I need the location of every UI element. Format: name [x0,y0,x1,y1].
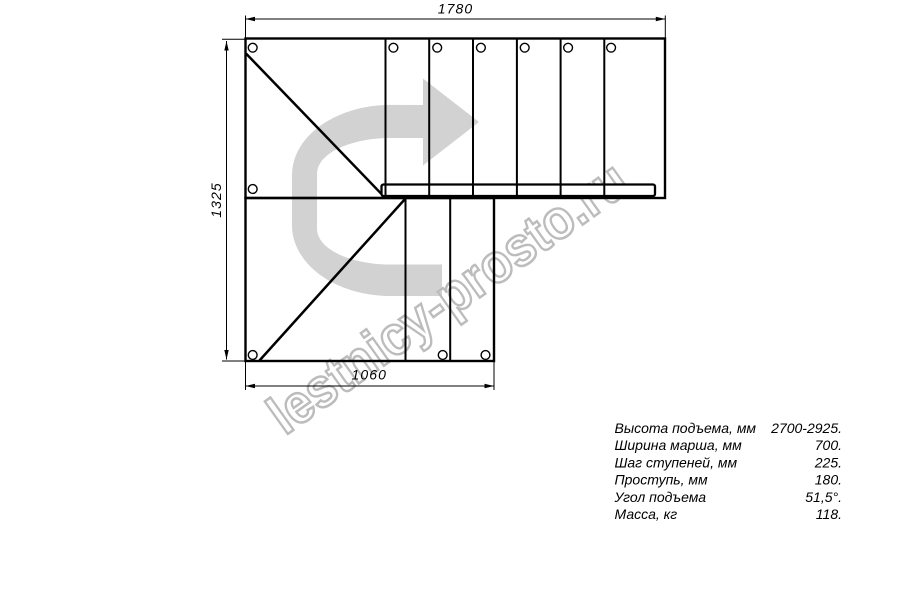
svg-text:51,5°.: 51,5°. [805,489,842,505]
svg-text:Ширина марша, мм: Ширина марша, мм [615,437,743,453]
svg-text:1060: 1060 [352,367,388,383]
svg-text:Шаг ступеней, мм: Шаг ступеней, мм [615,454,738,470]
svg-text:Угол подъема: Угол подъема [614,489,707,505]
svg-text:700.: 700. [815,437,842,453]
svg-text:Масса, кг: Масса, кг [615,506,678,522]
svg-text:225.: 225. [814,454,842,470]
svg-text:118.: 118. [816,506,842,522]
svg-text:Проступь, мм: Проступь, мм [615,472,709,488]
svg-text:180.: 180. [815,472,842,488]
svg-text:2700-2925.: 2700-2925. [770,420,842,436]
svg-text:1325: 1325 [208,182,224,218]
svg-text:Высота подъема, мм: Высота подъема, мм [615,420,757,436]
svg-text:1780: 1780 [438,1,474,17]
